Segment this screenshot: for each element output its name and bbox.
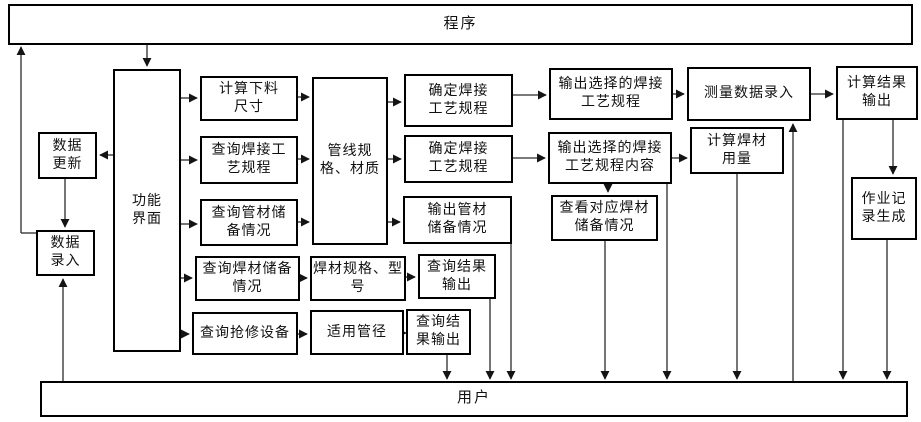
node-weld-material-spec: 焊材规格、型 号: [310, 256, 406, 301]
node-output-selected-procedure-content: 输出选择的焊接 工艺规程内容: [548, 132, 672, 184]
program-bar-label: 程序: [443, 15, 477, 34]
node-query-result-output-2: 查询结 果输出: [406, 309, 471, 355]
node-query-weld-material-stock: 查询焊材储备 情况: [195, 256, 300, 301]
node-determine-welding-procedure-1: 确定焊接 工艺规程: [404, 74, 513, 127]
node-pipeline-spec: 管线规 格、材质: [312, 77, 388, 245]
node-data-entry: 数据 录入: [36, 230, 95, 276]
node-function-interface: 功能 界面: [113, 69, 181, 352]
node-calc-weld-material-usage: 计算焊材 用量: [690, 127, 784, 174]
user-bar: 用户: [40, 381, 908, 417]
node-output-selected-procedure: 输出选择的焊接 工艺规程: [549, 68, 673, 120]
node-query-result-output-1: 查询结果 输出: [418, 254, 496, 299]
user-bar-label: 用户: [457, 389, 491, 408]
node-data-update: 数据 更新: [38, 132, 97, 179]
node-calc-result-output: 计算结果 输出: [836, 66, 918, 120]
node-query-pipe-stock: 查询管材储 备情况: [200, 199, 298, 246]
node-calc-cutting-size: 计算下料 尺寸: [200, 76, 298, 121]
node-measure-data-entry: 测量数据录入: [687, 67, 811, 121]
node-job-record-generation: 作业记 录生成: [851, 177, 917, 240]
node-view-weld-material-stock: 查看对应焊材 储备情况: [551, 195, 658, 241]
node-applicable-diameter: 适用管径: [310, 310, 404, 355]
node-output-pipe-stock: 输出管材 储备情况: [403, 196, 512, 244]
node-query-repair-equipment: 查询抢修设备: [192, 312, 298, 355]
node-query-welding-procedure: 查询焊接工 艺规程: [200, 136, 298, 184]
node-determine-welding-procedure-2: 确定焊接 工艺规程: [404, 135, 513, 183]
program-bar: 程序: [8, 4, 913, 45]
flowchart-diagram: 程序 用户 数据 更新 数据 录入 功能 界面 计算下料 尺寸 查询焊接工 艺规…: [0, 0, 921, 422]
